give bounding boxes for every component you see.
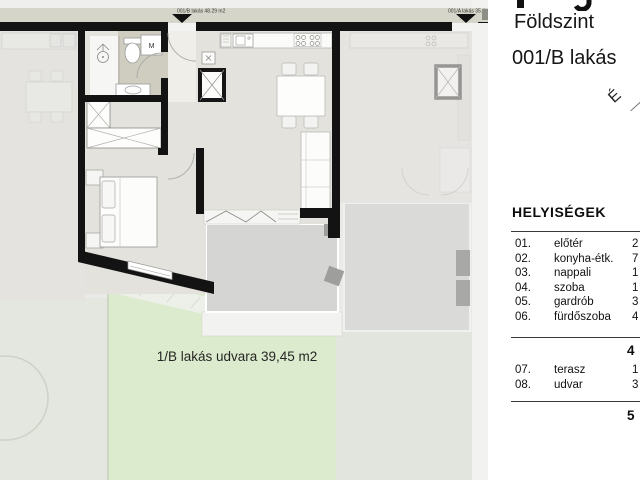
washing-machine: M xyxy=(141,35,162,55)
room-row: 01. előtér 2 xyxy=(488,237,640,252)
vent-box xyxy=(202,52,215,64)
neighbor-apartment-left xyxy=(0,23,85,300)
room-list: 01. előtér 2 02. konyha-étk. 7 03. nappa… xyxy=(488,237,640,324)
grand-total: 5 xyxy=(627,408,635,423)
indoor-total: 4 xyxy=(627,343,635,358)
divider xyxy=(511,401,640,402)
terrace-b xyxy=(202,224,344,336)
info-panel: Földszint 001/B lakás É HELYISÉGEK 01. e… xyxy=(488,0,640,480)
svg-text:M: M xyxy=(149,43,155,50)
divider xyxy=(511,231,640,232)
neighbor-apartment-right xyxy=(340,23,472,203)
pillow xyxy=(102,215,115,242)
entrance-b-label: 001/B lakás 48.29 m2 xyxy=(177,9,226,15)
shaft-neighbor xyxy=(436,66,460,98)
roof-band xyxy=(0,8,488,23)
entrance-b-opening xyxy=(168,23,196,31)
pillow xyxy=(102,181,115,208)
unit-label: 001/B lakás xyxy=(512,47,617,70)
room-row: 03. nappali 1 xyxy=(488,266,640,281)
screenshot: M xyxy=(0,0,640,480)
rooms-header: HELYISÉGEK xyxy=(512,204,606,220)
entrance-a-label: 001/A lakás 35.4 xyxy=(448,9,485,15)
divider xyxy=(511,337,640,338)
outdoor-room-list: 07. terasz 1 08. udvar 3 xyxy=(488,363,640,392)
sofa xyxy=(301,132,330,214)
room-row: 08. udvar 3 xyxy=(488,378,640,393)
north-label: É xyxy=(605,87,625,108)
shaft xyxy=(200,70,224,100)
clipped-title-glyphs xyxy=(488,0,640,11)
north-arrow-icon xyxy=(630,102,640,111)
room-row: 04. szoba 1 xyxy=(488,281,640,296)
room-row: 07. terasz 1 xyxy=(488,363,640,378)
floor-label: Földszint xyxy=(514,11,594,34)
room-row: 05. gardrób 3 xyxy=(488,295,640,310)
room-row: 06. fürdőszoba 4 xyxy=(488,310,640,325)
neighbor-terrace xyxy=(344,203,470,331)
floor-plan: M xyxy=(0,0,488,480)
courtyard-label: 1/B lakás udvara 39,45 m2 xyxy=(157,349,318,364)
room-row: 02. konyha-étk. 7 xyxy=(488,252,640,267)
toilet-icon xyxy=(124,38,141,63)
bathroom: M xyxy=(90,31,168,96)
kitchen-counter xyxy=(220,33,332,48)
washbasin-icon xyxy=(116,84,150,96)
neighbor-courtyard-right xyxy=(336,332,488,480)
neighbor-courtyard-left xyxy=(0,298,108,480)
kitchen-sink-icon xyxy=(233,34,253,47)
terrace-door xyxy=(204,210,300,224)
